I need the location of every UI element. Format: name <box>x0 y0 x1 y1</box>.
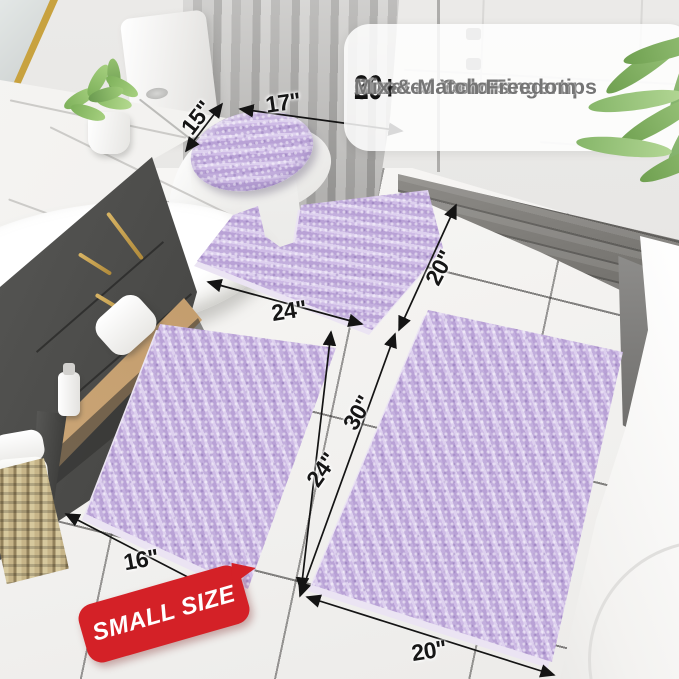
dimension-label-large-width: 20" <box>410 635 449 667</box>
bottle-cap <box>63 363 75 375</box>
toiletry-bottle <box>58 372 80 416</box>
feature-label: Mix & Match Freedom <box>354 75 576 100</box>
dimension-label-contour-width: 24" <box>270 295 309 327</box>
product-scene: 17" 15" 24" 20" 16" 24" 30" 20" ✓ 20+ Si… <box>0 0 679 679</box>
dimension-label-lid-width: 17" <box>264 87 302 119</box>
